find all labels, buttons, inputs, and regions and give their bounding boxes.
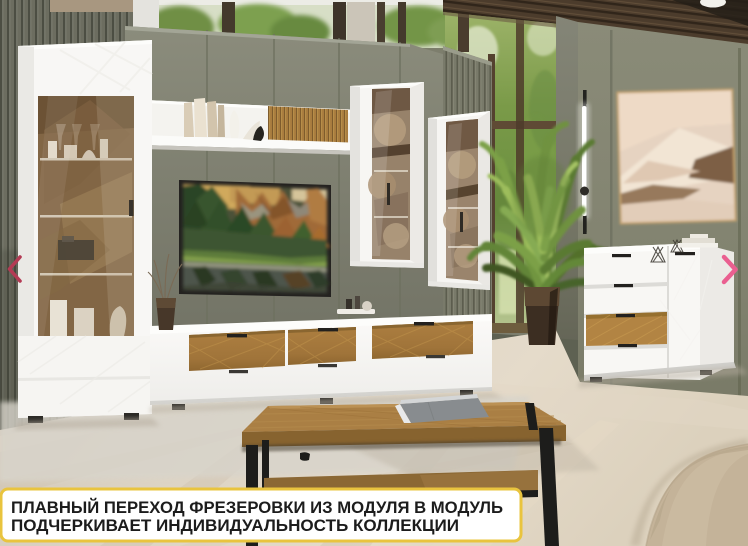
svg-text:ПОДЧЕРКИВАЕТ ИНДИВИДУАЛЬНОСТЬ: ПОДЧЕРКИВАЕТ ИНДИВИДУАЛЬНОСТЬ КОЛЛЕКЦИИ bbox=[11, 517, 459, 535]
svg-text:ПЛАВНЫЙ ПЕРЕХОД ФРЕЗЕРОВКИ ИЗ: ПЛАВНЫЙ ПЕРЕХОД ФРЕЗЕРОВКИ ИЗ МОДУЛЯ В М… bbox=[11, 498, 503, 517]
